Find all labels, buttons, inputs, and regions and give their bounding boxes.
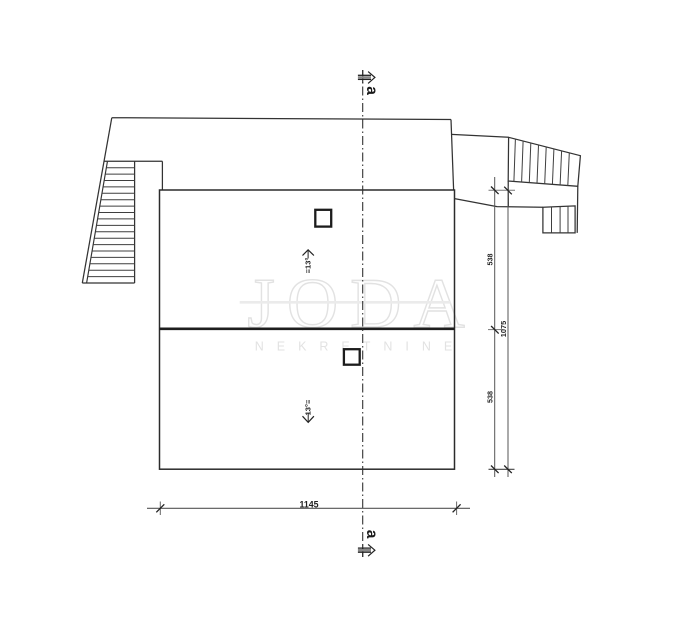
svg-text:538: 538 <box>485 254 494 266</box>
svg-text:13°≡: 13°≡ <box>304 399 313 415</box>
svg-text:JODA: JODA <box>247 265 476 343</box>
svg-text:a: a <box>363 86 380 95</box>
svg-text:a: a <box>363 530 380 539</box>
svg-text:1075: 1075 <box>499 321 508 337</box>
svg-text:538: 538 <box>485 391 494 403</box>
svg-text:≡13°: ≡13° <box>304 258 313 274</box>
svg-text:1145: 1145 <box>299 499 318 509</box>
